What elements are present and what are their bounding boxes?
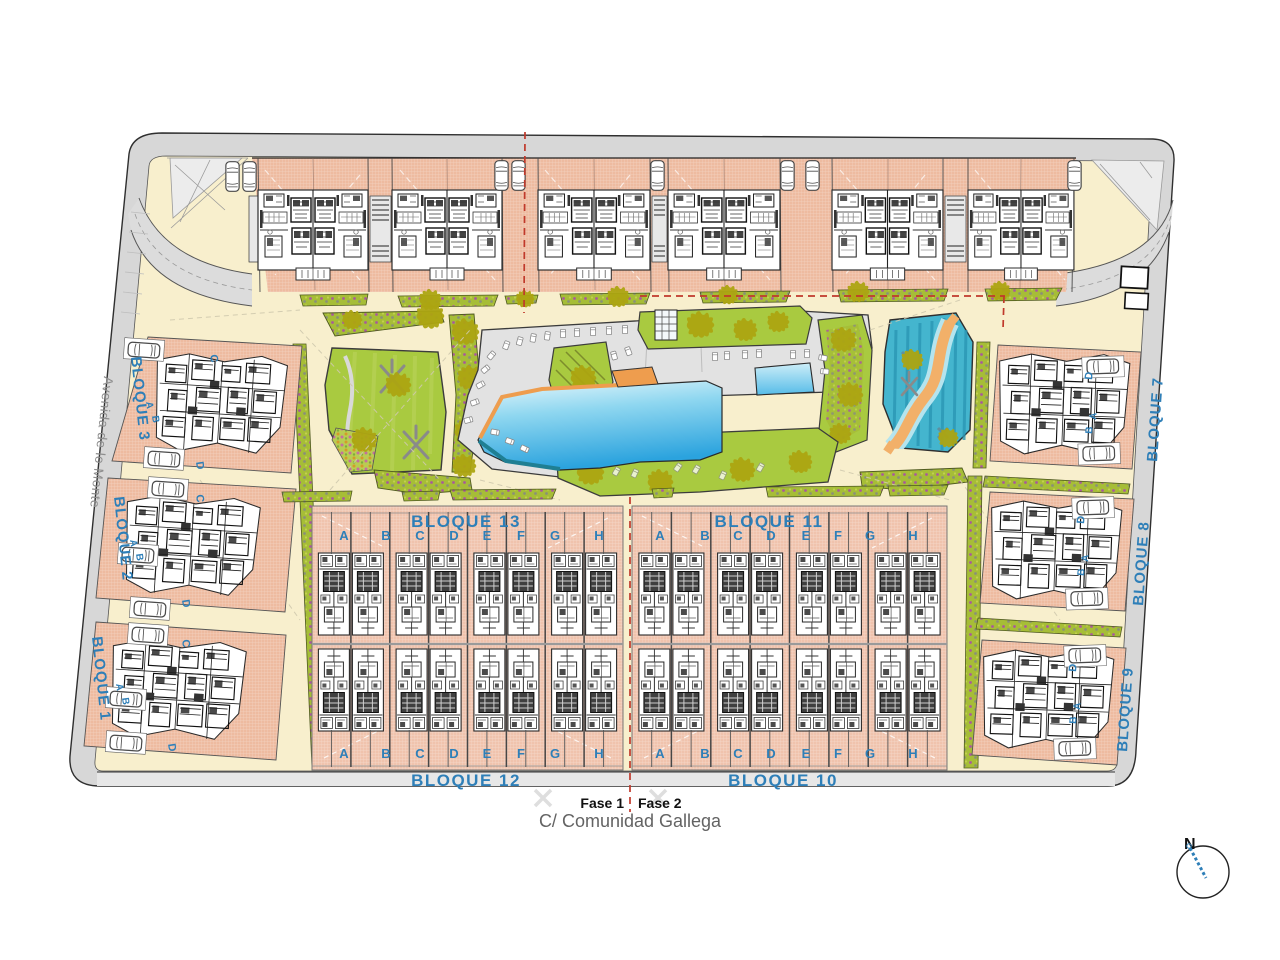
svg-text:B: B <box>700 746 709 761</box>
svg-text:D: D <box>449 746 458 761</box>
svg-text:E: E <box>802 746 811 761</box>
svg-text:Fase 2: Fase 2 <box>638 795 682 811</box>
svg-text:D: D <box>766 746 775 761</box>
svg-text:B: B <box>1076 568 1088 576</box>
svg-text:A: A <box>655 528 665 543</box>
svg-text:F: F <box>834 746 842 761</box>
svg-text:A: A <box>339 528 349 543</box>
svg-text:BLOQUE 11: BLOQUE 11 <box>715 512 824 531</box>
svg-text:B: B <box>1068 716 1080 724</box>
svg-text:A: A <box>1080 554 1092 562</box>
svg-text:BLOQUE 12: BLOQUE 12 <box>411 771 521 790</box>
svg-text:D: D <box>1083 371 1096 380</box>
svg-text:A: A <box>113 683 125 692</box>
svg-text:D: D <box>1067 663 1080 672</box>
svg-text:A: A <box>1088 412 1100 420</box>
svg-text:H: H <box>908 528 917 543</box>
svg-text:H: H <box>594 746 603 761</box>
svg-text:F: F <box>834 528 842 543</box>
svg-text:C: C <box>415 746 425 761</box>
svg-text:D: D <box>1075 515 1088 524</box>
svg-text:B: B <box>133 553 145 562</box>
svg-text:H: H <box>594 528 603 543</box>
svg-text:G: G <box>550 746 560 761</box>
svg-text:F: F <box>517 746 525 761</box>
svg-text:A: A <box>1072 702 1084 710</box>
svg-text:A: A <box>339 746 349 761</box>
svg-text:B: B <box>1084 426 1096 434</box>
svg-text:Fase 1: Fase 1 <box>580 795 624 811</box>
svg-text:B: B <box>381 528 390 543</box>
svg-text:BLOQUE 10: BLOQUE 10 <box>728 771 838 790</box>
svg-text:G: G <box>550 528 560 543</box>
svg-text:E: E <box>483 746 492 761</box>
svg-text:B: B <box>381 746 390 761</box>
svg-text:H: H <box>908 746 917 761</box>
svg-text:B: B <box>119 697 131 706</box>
svg-text:B: B <box>700 528 709 543</box>
svg-text:G: G <box>865 746 875 761</box>
svg-text:A: A <box>655 746 665 761</box>
svg-text:G: G <box>865 528 875 543</box>
svg-text:C/ Comunidad Gallega: C/ Comunidad Gallega <box>539 811 722 831</box>
svg-text:BLOQUE 13: BLOQUE 13 <box>411 512 521 531</box>
svg-text:C: C <box>733 746 743 761</box>
